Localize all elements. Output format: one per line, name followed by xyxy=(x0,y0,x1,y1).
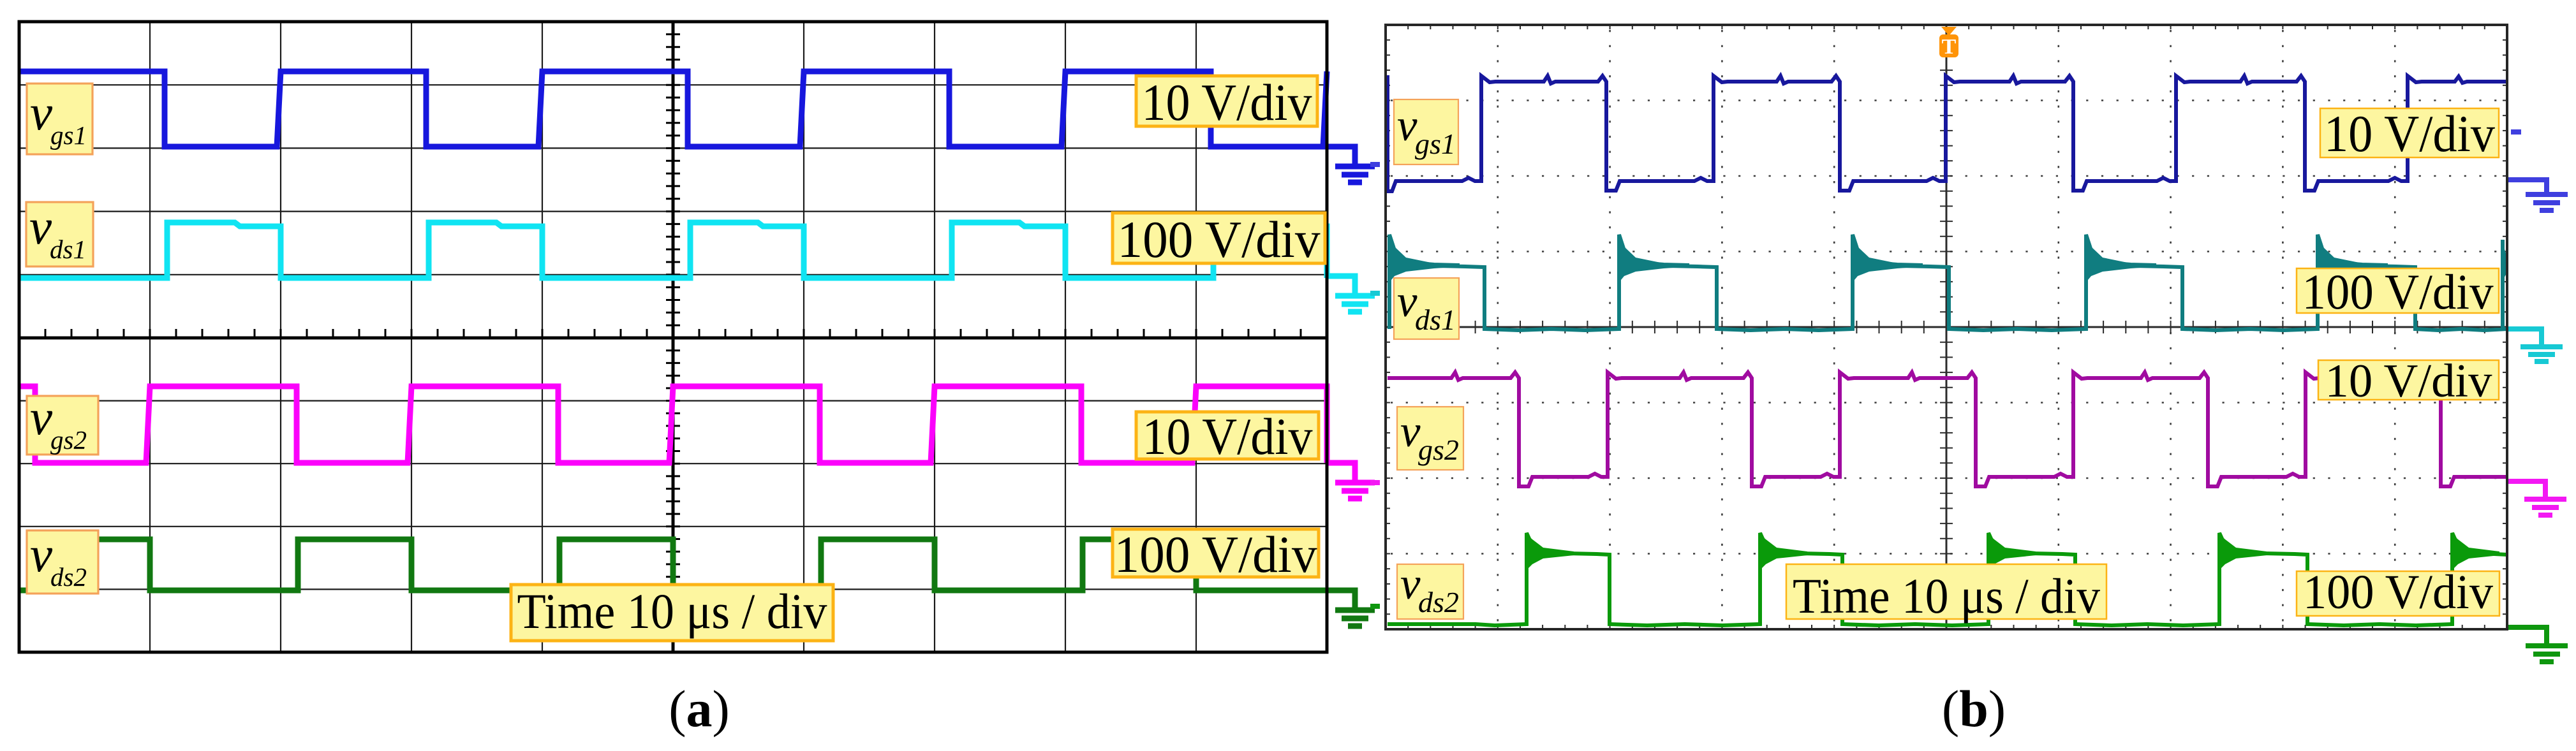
svg-text:10 V/div: 10 V/div xyxy=(1143,407,1313,465)
svg-text:v: v xyxy=(29,200,52,255)
svg-text:ds1: ds1 xyxy=(1415,303,1456,336)
svg-text:100 V/div: 100 V/div xyxy=(1114,525,1317,583)
svg-text:gs1: gs1 xyxy=(50,120,87,150)
svg-text:(b): (b) xyxy=(1942,680,2006,738)
svg-text:gs2: gs2 xyxy=(1418,434,1459,466)
svg-text:gs2: gs2 xyxy=(50,425,87,455)
svg-text:Time 10 μs / div: Time 10 μs / div xyxy=(1793,568,2100,623)
svg-text:gs1: gs1 xyxy=(1415,128,1456,160)
svg-text:10 V/div: 10 V/div xyxy=(2325,355,2492,407)
svg-text:ds2: ds2 xyxy=(50,562,87,592)
svg-text:10 V/div: 10 V/div xyxy=(1142,73,1312,131)
svg-text:v: v xyxy=(30,390,53,446)
svg-text:Time 10 μs / div: Time 10 μs / div xyxy=(517,583,827,639)
svg-text:v: v xyxy=(30,527,53,583)
svg-text:100 V/div: 100 V/div xyxy=(1118,210,1321,268)
svg-text:T: T xyxy=(1942,35,1957,59)
svg-text:10 V/div: 10 V/div xyxy=(2324,105,2495,163)
svg-text:(a): (a) xyxy=(669,680,730,738)
svg-text:ds1: ds1 xyxy=(50,235,86,264)
svg-text:v: v xyxy=(30,85,53,141)
svg-text:100 V/div: 100 V/div xyxy=(2302,264,2494,319)
svg-text:ds2: ds2 xyxy=(1418,586,1459,618)
svg-text:100 V/div: 100 V/div xyxy=(2303,565,2493,619)
